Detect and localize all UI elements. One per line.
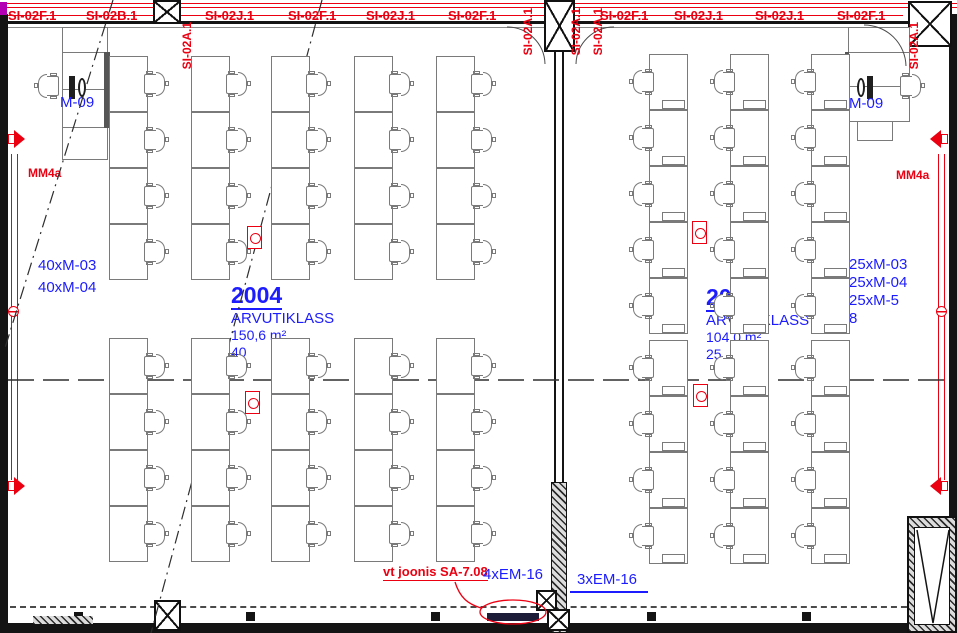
student-desk [436, 56, 475, 112]
chair [144, 410, 169, 434]
student-desk [436, 394, 475, 450]
chair [306, 128, 331, 152]
room-name: ARVUTIKLASS [231, 310, 334, 327]
student-desk [109, 338, 148, 394]
wall-label-vertical: SI-02A.1 [521, 8, 535, 55]
student-desk [354, 112, 393, 168]
desk-pc [662, 268, 685, 277]
chair [710, 468, 735, 492]
desk-pc [824, 442, 847, 451]
red-conduit [938, 154, 945, 480]
sill-hatch [33, 616, 93, 624]
window-mullion [802, 612, 811, 621]
device-circle-icon [8, 306, 19, 317]
wall-label: SI-02J.1 [674, 8, 723, 23]
chair [306, 466, 331, 490]
top-red-line-1 [0, 3, 957, 4]
chair [710, 412, 735, 436]
reference-note: vt joonis SA-7.08 [383, 564, 488, 581]
student-desk [109, 450, 148, 506]
teacher-station-label: M-09 [849, 95, 883, 112]
chair [471, 72, 496, 96]
window-mullion [431, 612, 440, 621]
chair [710, 524, 735, 548]
student-desk [271, 224, 310, 280]
red-device-icon [692, 221, 707, 244]
teacher-side-table [62, 127, 108, 160]
student-desk [191, 394, 230, 450]
red-device-icon [245, 391, 260, 414]
desk-pc [662, 100, 685, 109]
wall-label-vertical: SI-02A.1 [591, 8, 605, 55]
red-conduit [11, 154, 18, 480]
wall-label: SI-02J.1 [205, 8, 254, 23]
chair [710, 126, 735, 150]
chair [791, 294, 816, 318]
desk-pc [824, 212, 847, 221]
shaft-inner [914, 527, 950, 625]
speaker-icon [14, 130, 25, 148]
chair [226, 184, 251, 208]
chair [144, 466, 169, 490]
chair [389, 522, 414, 546]
chair [226, 128, 251, 152]
center-wall [554, 27, 564, 483]
desk-pc [743, 554, 766, 563]
chair [791, 238, 816, 262]
student-desk [109, 394, 148, 450]
desk-pc [743, 268, 766, 277]
equipment-list-2005: 25xM-0325xM-0425xM-58 [849, 256, 907, 328]
student-desk [271, 394, 310, 450]
mm4a-label: MM4a [896, 168, 929, 182]
chair [389, 72, 414, 96]
chair [791, 412, 816, 436]
desk-pc [662, 442, 685, 451]
desk-pc [824, 554, 847, 563]
chair [144, 72, 169, 96]
chair [629, 356, 654, 380]
desk-pc [662, 386, 685, 395]
column [536, 590, 557, 611]
equipment-item: 25xM-5 [849, 292, 907, 310]
chair [471, 410, 496, 434]
chair [629, 294, 654, 318]
room-number: 2004 [231, 283, 282, 310]
chair [471, 128, 496, 152]
chair [629, 182, 654, 206]
chair [144, 128, 169, 152]
desk-pc [743, 156, 766, 165]
column [154, 600, 181, 631]
wall-label: SI-02F.1 [600, 8, 648, 23]
window-mullion [246, 612, 255, 621]
teacher-cabinet [848, 27, 910, 53]
wall-label: SI-02F.1 [448, 8, 496, 23]
chair [471, 522, 496, 546]
student-desk [354, 450, 393, 506]
teacher-side-table [857, 121, 893, 141]
chair [226, 72, 251, 96]
wall-label: SI-02J.1 [755, 8, 804, 23]
note-leader [455, 582, 481, 608]
chair [306, 354, 331, 378]
student-desk [436, 224, 475, 280]
student-desk [109, 224, 148, 280]
floorbox-label-left: 4xEM-16 [483, 566, 543, 583]
bottom-wall [0, 623, 957, 633]
desk-pc [662, 554, 685, 563]
speaker-icon [930, 130, 941, 148]
red-device-icon [693, 384, 708, 407]
chair [710, 294, 735, 318]
student-desk [271, 168, 310, 224]
wall-label: SI-02J.1 [366, 8, 415, 23]
desk-pc [743, 100, 766, 109]
chair [389, 128, 414, 152]
device-circle-icon [936, 306, 947, 317]
chair [226, 354, 251, 378]
desk-pc [662, 498, 685, 507]
desk-pc [743, 212, 766, 221]
chair [144, 522, 169, 546]
chair [471, 184, 496, 208]
chair [389, 354, 414, 378]
floorbox-underline [570, 591, 648, 593]
equipment-item: 25xM-03 [849, 256, 907, 274]
equipment-item: 8 [849, 310, 907, 328]
desk-pc [824, 156, 847, 165]
student-desk [436, 112, 475, 168]
chair [306, 410, 331, 434]
speaker-icon [941, 481, 948, 491]
chair [471, 466, 496, 490]
desk-pc [743, 324, 766, 333]
student-desk [191, 338, 230, 394]
equipment-list-2004: 40xM-0340xM-04 [38, 255, 96, 299]
chair [389, 466, 414, 490]
red-device-icon [247, 226, 262, 249]
chair [710, 182, 735, 206]
wall-label: SI-02F.1 [837, 8, 885, 23]
equipment-item: 40xM-04 [38, 277, 96, 299]
student-desk [271, 506, 310, 562]
student-desk [354, 224, 393, 280]
student-desk [436, 450, 475, 506]
chair [471, 354, 496, 378]
student-desk [271, 56, 310, 112]
bottom-window-dashed-line [10, 606, 947, 608]
chair [629, 412, 654, 436]
student-desk [109, 168, 148, 224]
wall-label: SI-02F.1 [8, 8, 56, 23]
student-desk [354, 168, 393, 224]
chair [710, 238, 735, 262]
corner-marker [0, 2, 7, 15]
column [153, 0, 181, 24]
desk-pc [824, 498, 847, 507]
speaker-icon [14, 477, 25, 495]
student-desk [109, 112, 148, 168]
chair [389, 240, 414, 264]
student-desk [354, 56, 393, 112]
student-desk [191, 224, 230, 280]
student-desk [271, 112, 310, 168]
floorbox-label-right: 3xEM-16 [577, 571, 637, 588]
chair [629, 238, 654, 262]
student-desk [109, 56, 148, 112]
floor-plan: M-09 M-09 MM4a MM4a 2004 ARVUTIKLASS 150… [0, 0, 957, 633]
desk-pc [824, 100, 847, 109]
teacher-chair [900, 74, 925, 98]
teacher-station-label: M-09 [60, 94, 94, 111]
desk-pc [743, 442, 766, 451]
chair [629, 126, 654, 150]
chair [306, 240, 331, 264]
desk-pc [662, 212, 685, 221]
desk-pc [824, 324, 847, 333]
chair [629, 468, 654, 492]
desk-pc [662, 156, 685, 165]
wall-label: SI-02B.1 [86, 8, 137, 23]
chair [791, 356, 816, 380]
student-desk [191, 112, 230, 168]
chair [226, 522, 251, 546]
chair [306, 72, 331, 96]
student-desk [436, 338, 475, 394]
student-desk [354, 338, 393, 394]
chair [389, 410, 414, 434]
teacher-chair [34, 74, 59, 98]
student-desk [271, 450, 310, 506]
student-desk [109, 506, 148, 562]
desk-pc [662, 324, 685, 333]
floor-box-4xem16 [487, 613, 539, 621]
student-desk [191, 56, 230, 112]
wall-label: SI-02F.1 [288, 8, 336, 23]
desk-pc [743, 498, 766, 507]
top-wall-inner-line [0, 27, 957, 28]
chair [791, 524, 816, 548]
student-desk [436, 506, 475, 562]
student-desk [191, 506, 230, 562]
chair [791, 182, 816, 206]
left-wall [0, 14, 8, 633]
student-desk [191, 450, 230, 506]
chair [791, 126, 816, 150]
equipment-item: 40xM-03 [38, 255, 96, 277]
student-desk [354, 506, 393, 562]
student-desk [271, 338, 310, 394]
chair [710, 356, 735, 380]
speaker-icon [941, 134, 948, 144]
desk-pc [824, 386, 847, 395]
wall-label-vertical: SI-02A.1 [907, 22, 921, 69]
mm4a-label: MM4a [28, 166, 61, 180]
chair [471, 240, 496, 264]
chair [306, 184, 331, 208]
teacher-cabinet [62, 27, 108, 53]
speaker-icon [930, 477, 941, 495]
wall-label-vertical: SI-02A.1 [569, 8, 583, 55]
equipment-item: 25xM-04 [849, 274, 907, 292]
student-desk [354, 394, 393, 450]
chair [791, 70, 816, 94]
chair [144, 354, 169, 378]
chair [710, 70, 735, 94]
chair [389, 184, 414, 208]
chair [629, 524, 654, 548]
chair [306, 522, 331, 546]
chair [144, 240, 169, 264]
student-desk [191, 168, 230, 224]
chair [791, 468, 816, 492]
desk-pc [743, 386, 766, 395]
desk-pc [824, 268, 847, 277]
chair [144, 184, 169, 208]
window-mullion [647, 612, 656, 621]
column [547, 609, 570, 631]
chair [629, 70, 654, 94]
student-desk [436, 168, 475, 224]
chair [226, 466, 251, 490]
